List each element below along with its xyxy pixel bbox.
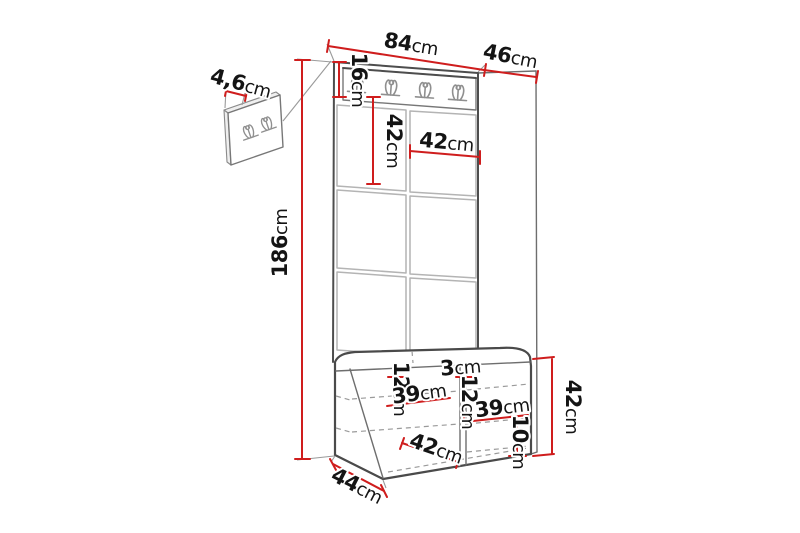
dim-panel-thickness-label: 4,6cm (208, 64, 274, 103)
panel-tile (337, 190, 406, 273)
dim-total-height-label: 186cm (268, 209, 292, 278)
panel-tile (410, 278, 476, 360)
detail-leader-line (283, 61, 331, 121)
dimension-diagram-page: 84cm 46cm 186cm 16cm 4,6cm 42cm 42cm 3cm… (0, 0, 800, 533)
dim-right-bottom-label: 10cm (508, 415, 532, 470)
hallway-furniture-dimension-diagram: 84cm 46cm 186cm 16cm 4,6cm 42cm 42cm 3cm… (0, 0, 800, 533)
extension-line (383, 480, 386, 488)
dim-tick (533, 454, 554, 456)
dim-tick (327, 40, 329, 52)
dim-bench-height-label: 42cm (561, 380, 585, 435)
dim-total-depth-label: 46cm (481, 39, 539, 73)
dim-panel-height-label: 42cm (382, 114, 406, 169)
dim-hook-rail-label: 16cm (347, 53, 371, 108)
panel-tile (410, 196, 476, 278)
unit-left-edge (333, 62, 334, 362)
panel-tile (337, 272, 406, 355)
